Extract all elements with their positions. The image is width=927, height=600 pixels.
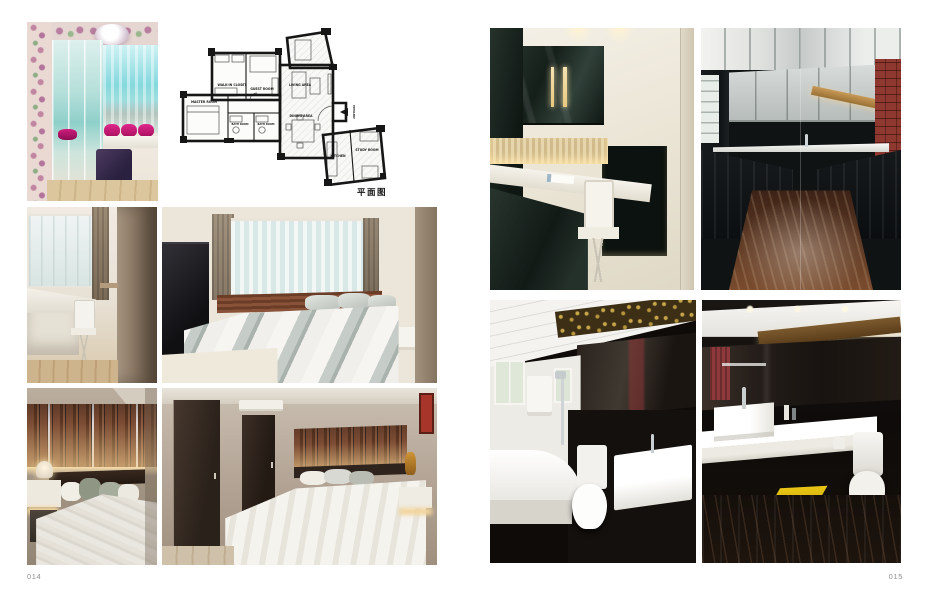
mirrored-wardrobe xyxy=(52,40,103,190)
shower-rail xyxy=(561,374,564,445)
red-curtain-reflection xyxy=(710,347,730,400)
vessel-basin xyxy=(614,444,692,510)
wood-floor xyxy=(27,360,118,383)
timber-slat-wall xyxy=(27,404,157,468)
amber-vase xyxy=(405,452,416,475)
photo-bathroom-tub xyxy=(490,300,696,563)
water-heater xyxy=(527,376,552,415)
pillow xyxy=(324,469,352,483)
pillow xyxy=(300,471,328,485)
lower-cabinets-dark xyxy=(490,188,588,290)
room-label-bathroom-1: BATH ROOM xyxy=(232,122,249,126)
room-label-bathroom-2: BATH ROOM xyxy=(258,122,275,126)
window xyxy=(494,360,525,405)
nightstand xyxy=(399,487,432,508)
magenta-cushion xyxy=(138,124,154,137)
floral-wallpaper xyxy=(27,22,52,201)
window-blind xyxy=(701,75,719,143)
chair-back xyxy=(584,180,615,230)
photo-bedroom-doors xyxy=(162,388,437,565)
red-artwork xyxy=(419,393,434,434)
pillow xyxy=(349,471,374,485)
photo-desk-corner xyxy=(27,207,157,383)
nightstand-glow xyxy=(399,508,432,514)
door-handle xyxy=(214,473,216,479)
dark-marble-floor xyxy=(702,495,901,563)
shower-head xyxy=(555,371,566,379)
window-sheer-curtain xyxy=(27,214,100,288)
mirror-band xyxy=(577,333,696,419)
toilet-bowl xyxy=(572,484,607,529)
chair-legs xyxy=(580,238,617,283)
toilet-tank xyxy=(577,445,608,490)
mirror-seam xyxy=(800,28,801,290)
room-label-living-area: LIVING AREA xyxy=(289,83,312,87)
timber-slat-wall xyxy=(294,425,407,468)
photo-bathroom-vanity xyxy=(702,300,901,563)
white-nightstand xyxy=(27,480,61,507)
lit-stone-splashback xyxy=(490,138,608,164)
mirror-band xyxy=(702,337,901,411)
basin-faucet xyxy=(651,434,654,452)
photo-dressing-corner xyxy=(27,22,158,201)
downlight-glow xyxy=(604,28,635,44)
page-number-left: 014 xyxy=(27,572,41,581)
timber-door-left xyxy=(173,400,220,550)
photo-study-desk xyxy=(490,28,694,290)
wood-wardrobe-edge xyxy=(415,207,437,383)
room-label-master-room: MASTER ROOM xyxy=(191,100,217,104)
book-spread: WALK-IN CLOSET GUEST ROOM MASTER ROOM BA… xyxy=(0,0,927,600)
door-handle xyxy=(271,462,273,468)
wood-ledge xyxy=(100,283,118,288)
room-label-study-room: STUDY ROOM xyxy=(355,148,378,152)
toilet-tank xyxy=(853,432,883,477)
side-wall-shadow xyxy=(145,388,157,565)
corner-window-sheers xyxy=(231,218,369,295)
drape-right xyxy=(363,218,380,294)
chair-seat xyxy=(71,328,96,335)
magenta-cushion xyxy=(104,124,120,137)
table-lamp xyxy=(36,461,53,479)
window-city-view xyxy=(103,45,158,133)
toiletry-bottle xyxy=(792,408,796,420)
entrance-arrow xyxy=(340,108,348,116)
room-label-kitchen: KITCHEN xyxy=(330,154,346,158)
room-label-dining-area: DINING AREA xyxy=(290,114,314,118)
toiletry-bottle xyxy=(784,405,789,419)
air-conditioner xyxy=(239,400,283,411)
towel-rail xyxy=(722,363,766,366)
pendant-light xyxy=(551,67,554,106)
downlight xyxy=(746,305,754,313)
room-label-guest-room: GUEST ROOM xyxy=(250,87,273,91)
downlight-glow xyxy=(563,28,594,44)
floor-plan-caption: 平面图 xyxy=(357,186,387,198)
floor-plan: WALK-IN CLOSET GUEST ROOM MASTER ROOM BA… xyxy=(180,28,393,198)
window-seat xyxy=(103,136,158,149)
magenta-cushion xyxy=(121,124,137,137)
pendant-light xyxy=(563,67,566,106)
chair-back xyxy=(74,300,95,330)
pillow xyxy=(305,295,341,311)
tub-apron xyxy=(490,500,572,524)
photo-kitchen xyxy=(701,28,901,290)
wood-wardrobe xyxy=(117,207,157,383)
floor-plan-drawing: WALK-IN CLOSET GUEST ROOM MASTER ROOM BA… xyxy=(180,28,393,186)
wardrobe-edge xyxy=(680,28,694,290)
wood-floor xyxy=(47,180,158,201)
wood-floor xyxy=(162,546,234,565)
purple-ottoman xyxy=(96,149,131,183)
photo-slat-wall-bed xyxy=(27,388,157,565)
pillow xyxy=(338,293,371,309)
page-number-right: 015 xyxy=(889,572,903,581)
entrance-label: ENTRANCE xyxy=(352,105,355,119)
tissue-holder xyxy=(833,437,845,449)
faucet xyxy=(805,134,808,147)
room-label-walk-in-closet: WALK-IN CLOSET xyxy=(217,83,247,87)
photo-bedroom-grey xyxy=(162,207,437,383)
cushion-reflection xyxy=(58,129,76,140)
faucet xyxy=(742,387,746,409)
